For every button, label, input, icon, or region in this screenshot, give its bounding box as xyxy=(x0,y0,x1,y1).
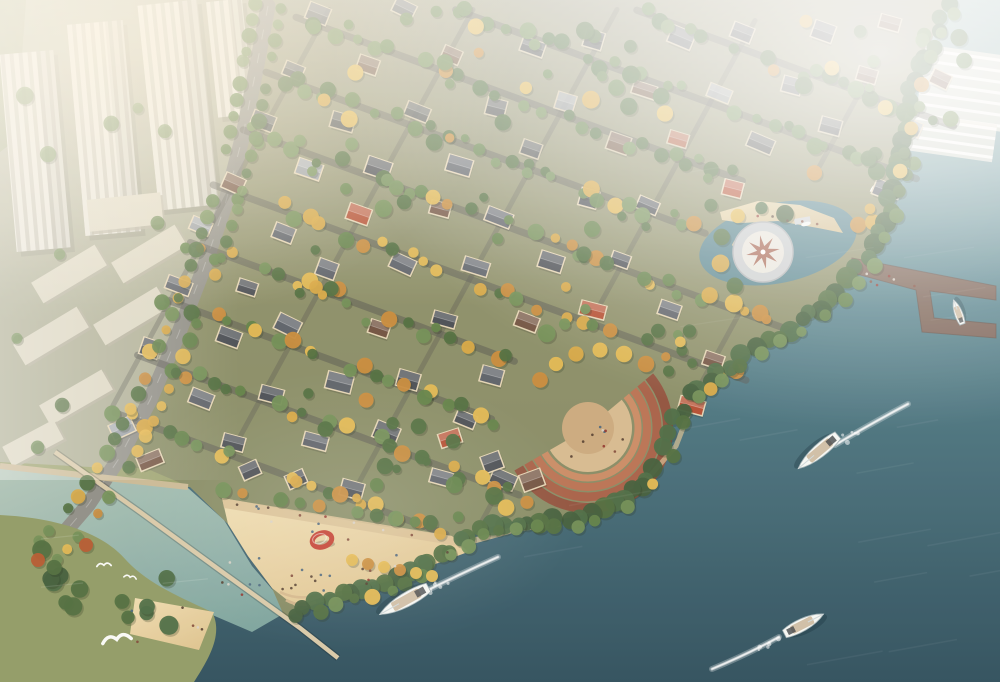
rendering-canvas xyxy=(0,0,1000,682)
aerial-rendering xyxy=(0,0,1000,682)
warm-tint xyxy=(0,0,1000,682)
